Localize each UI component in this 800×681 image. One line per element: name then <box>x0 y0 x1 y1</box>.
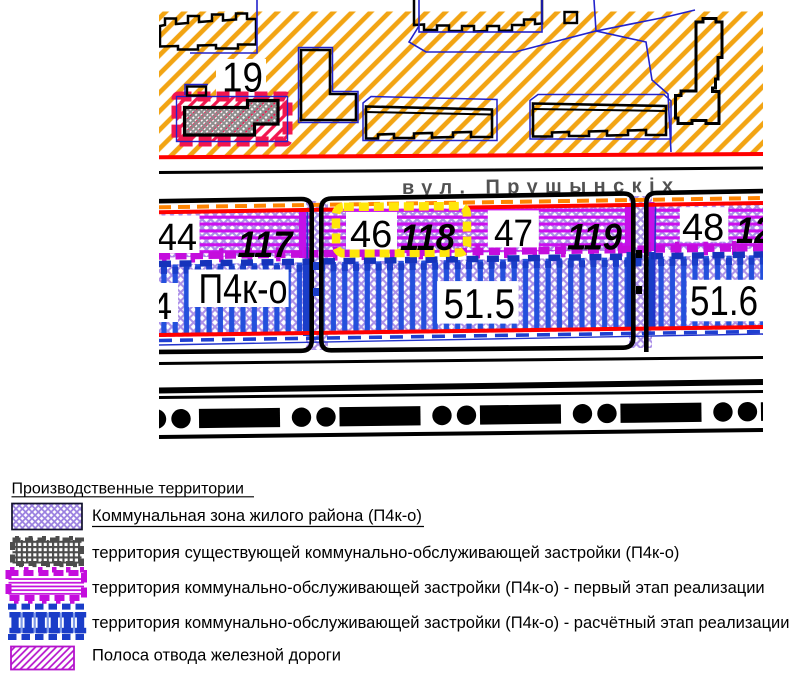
svg-text:48: 48 <box>682 207 724 249</box>
svg-text:44: 44 <box>157 217 197 259</box>
svg-text:территория коммунально-обслужи: территория коммунально-обслуживающей зас… <box>92 579 765 597</box>
svg-text:120: 120 <box>736 210 791 251</box>
svg-text:47: 47 <box>494 213 533 255</box>
svg-text:Производственные территории: Производственные территории <box>12 481 244 498</box>
svg-text:119: 119 <box>567 217 622 258</box>
svg-text:118: 118 <box>400 217 455 258</box>
svg-text:4: 4 <box>151 286 172 328</box>
svg-text:Полоса отвода железной дороги: Полоса отвода железной дороги <box>92 647 341 665</box>
svg-text:51.5: 51.5 <box>444 280 516 327</box>
svg-text:117: 117 <box>238 224 295 265</box>
svg-text:51.6: 51.6 <box>690 277 758 324</box>
svg-text:Коммунальная зона жилого район: Коммунальная зона жилого района (П4к-о) <box>92 507 422 525</box>
svg-text:территория существующей коммун: территория существующей коммунально-обсл… <box>92 544 679 562</box>
svg-text:П4к-о: П4к-о <box>199 265 288 312</box>
svg-text:территория коммунально-обслужи: территория коммунально-обслуживающей зас… <box>92 614 789 632</box>
svg-text:46: 46 <box>350 214 392 256</box>
